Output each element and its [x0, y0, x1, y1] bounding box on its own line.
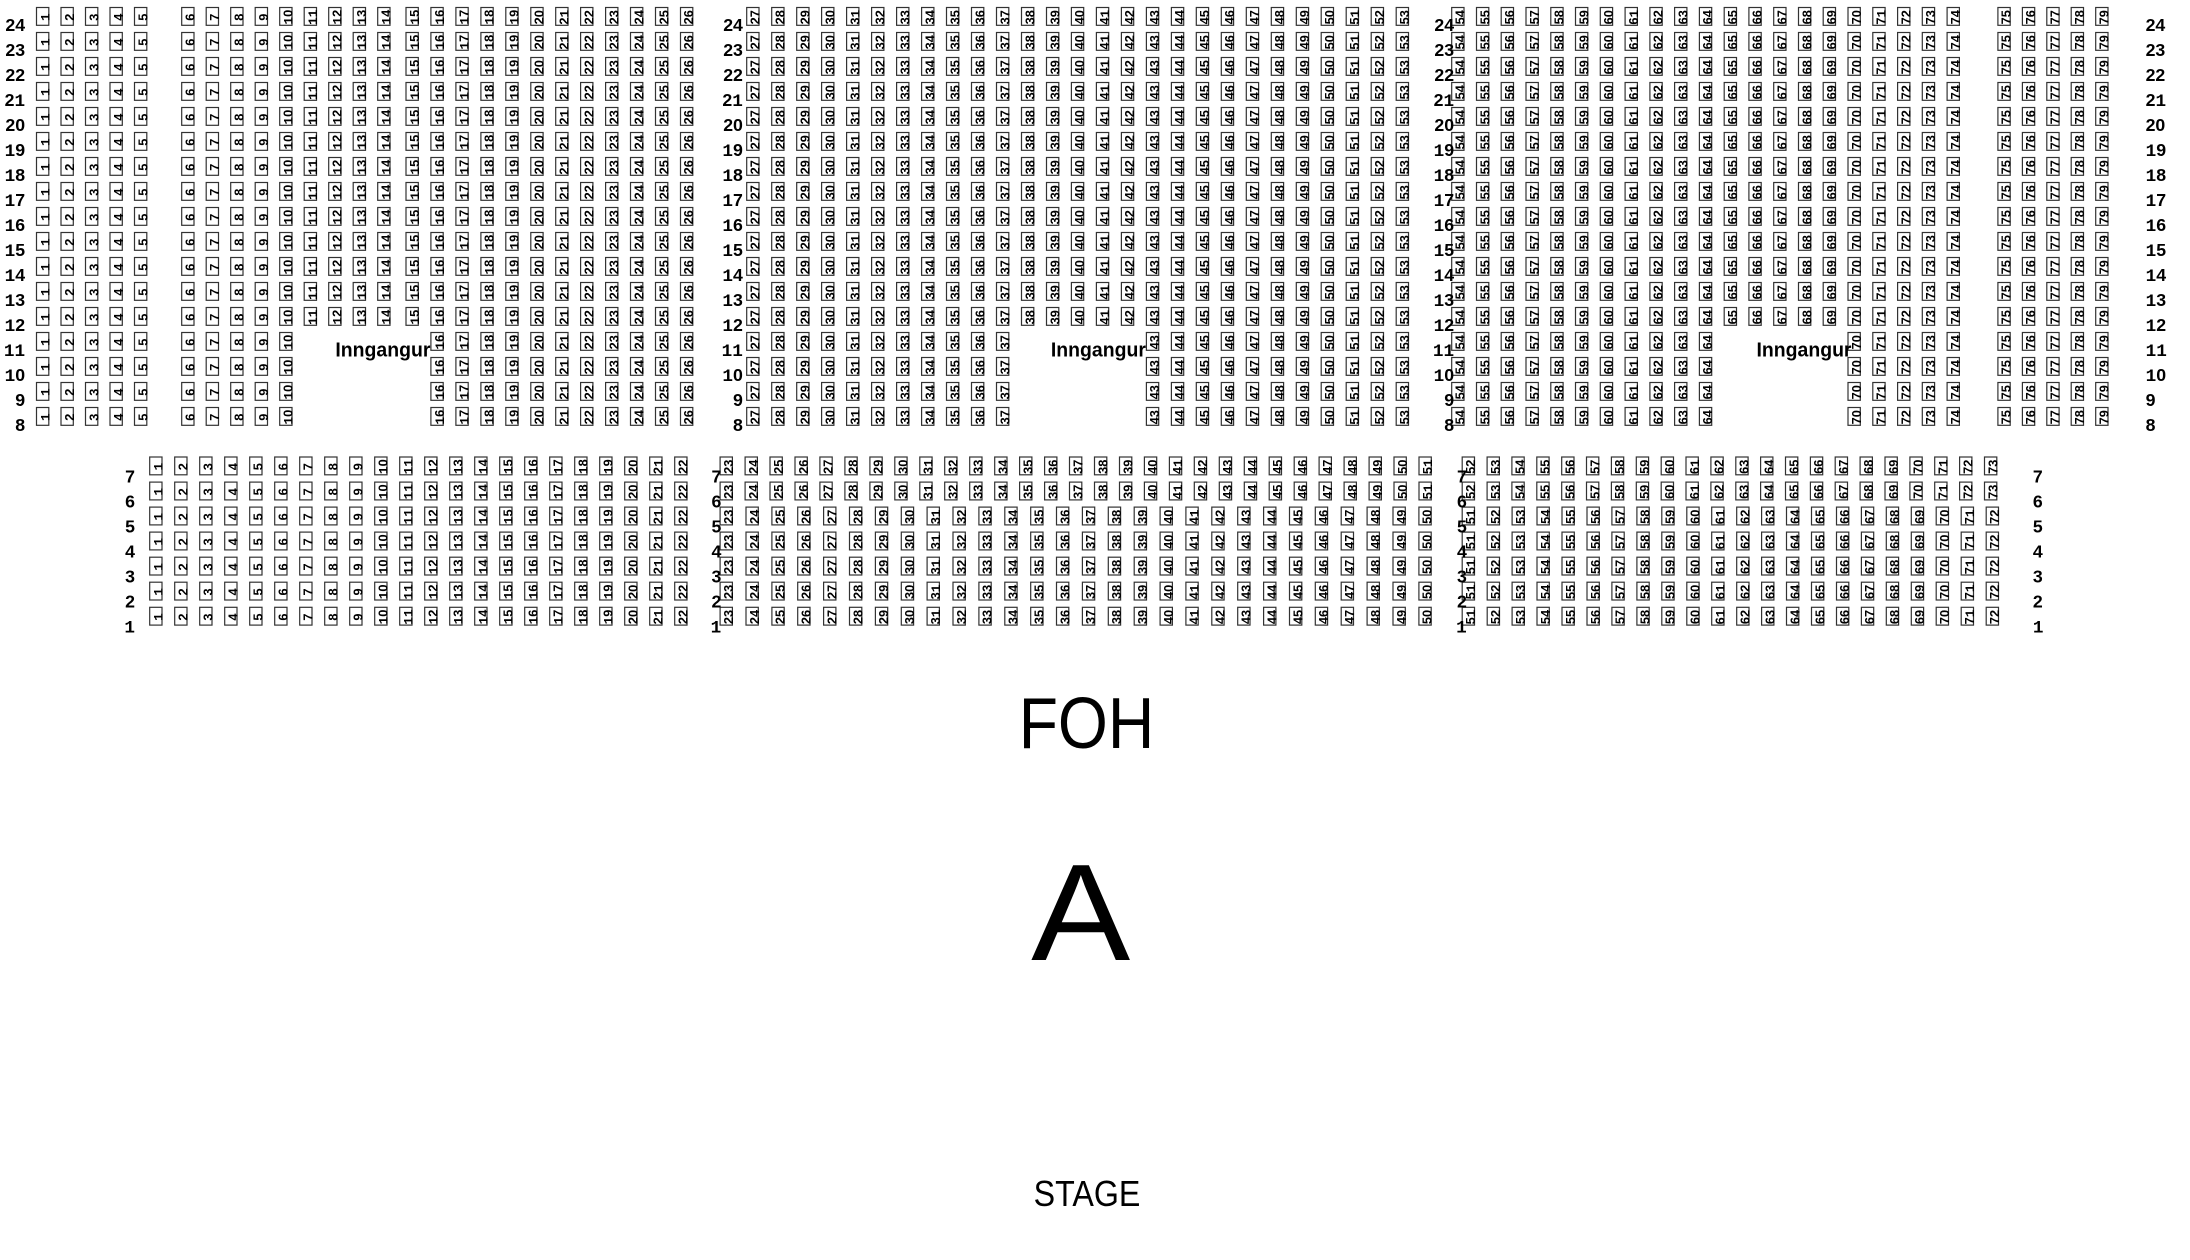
- svg-text:67: 67: [1775, 60, 1790, 74]
- svg-text:71: 71: [1962, 584, 1978, 599]
- svg-text:12: 12: [426, 610, 442, 625]
- svg-text:68: 68: [1799, 135, 1814, 149]
- svg-text:64: 64: [1700, 334, 1715, 349]
- svg-text:24: 24: [631, 134, 646, 149]
- svg-text:7: 7: [207, 89, 222, 96]
- svg-text:33: 33: [897, 35, 912, 49]
- svg-text:36: 36: [972, 285, 987, 299]
- svg-text:67: 67: [1862, 535, 1877, 549]
- svg-text:42: 42: [1122, 35, 1137, 49]
- svg-text:48: 48: [1272, 210, 1287, 224]
- svg-text:1: 1: [38, 188, 53, 196]
- svg-text:42: 42: [1195, 460, 1210, 474]
- svg-text:45: 45: [1197, 110, 1212, 124]
- svg-text:43: 43: [1147, 285, 1162, 299]
- svg-text:44: 44: [1172, 109, 1187, 124]
- svg-text:45: 45: [1197, 410, 1212, 424]
- svg-text:48: 48: [1272, 185, 1287, 199]
- svg-text:57: 57: [1527, 310, 1542, 324]
- svg-text:53: 53: [1397, 110, 1412, 124]
- svg-text:46: 46: [1222, 185, 1237, 199]
- svg-text:12: 12: [330, 260, 346, 275]
- svg-text:48: 48: [1272, 110, 1287, 124]
- svg-text:14: 14: [5, 265, 26, 287]
- svg-text:70: 70: [1849, 210, 1864, 224]
- svg-text:15: 15: [501, 509, 517, 524]
- svg-text:30: 30: [822, 385, 837, 399]
- svg-text:75: 75: [1999, 285, 2014, 299]
- svg-text:52: 52: [1372, 210, 1387, 224]
- svg-text:75: 75: [1999, 210, 2014, 224]
- svg-text:23: 23: [606, 410, 621, 424]
- svg-text:35: 35: [947, 360, 962, 374]
- svg-text:46: 46: [1316, 560, 1331, 574]
- svg-text:20: 20: [532, 185, 547, 199]
- svg-text:55: 55: [1563, 510, 1578, 524]
- svg-text:39: 39: [1047, 60, 1062, 74]
- svg-text:28: 28: [846, 485, 861, 499]
- svg-text:14: 14: [379, 84, 395, 100]
- svg-text:29: 29: [798, 285, 813, 299]
- svg-text:28: 28: [773, 385, 788, 399]
- svg-text:19: 19: [601, 534, 617, 549]
- svg-text:43: 43: [1147, 60, 1162, 74]
- svg-text:9: 9: [1444, 390, 1454, 410]
- svg-text:15: 15: [501, 534, 517, 549]
- svg-text:6: 6: [183, 189, 198, 196]
- svg-text:17: 17: [457, 260, 473, 275]
- svg-text:58: 58: [1552, 210, 1567, 224]
- svg-text:45: 45: [1197, 210, 1212, 224]
- svg-text:62: 62: [1651, 185, 1666, 199]
- svg-text:10: 10: [376, 610, 392, 625]
- svg-text:60: 60: [1601, 60, 1616, 74]
- svg-text:23: 23: [606, 310, 621, 324]
- svg-text:25: 25: [656, 410, 671, 424]
- svg-text:1: 1: [38, 363, 53, 371]
- svg-text:20: 20: [532, 360, 547, 374]
- svg-text:26: 26: [681, 160, 696, 174]
- svg-text:23: 23: [721, 485, 736, 499]
- svg-text:3: 3: [86, 289, 101, 296]
- svg-text:49: 49: [1297, 210, 1312, 224]
- svg-text:24: 24: [631, 184, 646, 199]
- svg-text:40: 40: [1145, 485, 1160, 499]
- svg-text:1: 1: [38, 113, 53, 121]
- svg-text:19: 19: [507, 310, 523, 325]
- svg-text:19: 19: [507, 360, 523, 375]
- svg-text:16: 16: [432, 235, 448, 250]
- svg-text:A: A: [1031, 836, 1130, 990]
- svg-text:11: 11: [402, 584, 417, 600]
- svg-text:63: 63: [1675, 110, 1690, 124]
- svg-text:39: 39: [1047, 160, 1062, 174]
- svg-text:48: 48: [1345, 460, 1360, 474]
- svg-text:56: 56: [1502, 110, 1517, 124]
- svg-text:11: 11: [306, 84, 321, 100]
- svg-text:60: 60: [1688, 535, 1703, 549]
- svg-text:25: 25: [656, 135, 671, 149]
- svg-text:2: 2: [62, 139, 77, 146]
- svg-text:71: 71: [1962, 609, 1978, 624]
- svg-text:55: 55: [1477, 235, 1492, 249]
- svg-text:16: 16: [2146, 215, 2167, 237]
- svg-text:22: 22: [581, 85, 596, 99]
- svg-text:52: 52: [1372, 285, 1387, 299]
- svg-text:49: 49: [1297, 310, 1312, 324]
- svg-text:73: 73: [1923, 135, 1938, 149]
- svg-text:62: 62: [1651, 60, 1666, 74]
- svg-text:47: 47: [1247, 10, 1262, 24]
- svg-text:27: 27: [748, 35, 763, 49]
- svg-text:23: 23: [2146, 40, 2166, 60]
- svg-text:71: 71: [1874, 359, 1890, 374]
- svg-text:57: 57: [1527, 110, 1542, 124]
- svg-text:33: 33: [897, 310, 912, 324]
- svg-text:52: 52: [1372, 35, 1387, 49]
- svg-text:9: 9: [2146, 390, 2156, 410]
- svg-text:FOH: FOH: [1019, 684, 1155, 764]
- svg-text:62: 62: [1651, 85, 1666, 99]
- svg-text:2: 2: [711, 592, 721, 612]
- svg-text:10: 10: [376, 484, 392, 499]
- svg-text:76: 76: [2023, 35, 2038, 49]
- svg-text:70: 70: [1849, 235, 1864, 249]
- svg-text:41: 41: [1097, 134, 1113, 149]
- svg-text:79: 79: [2097, 35, 2112, 49]
- svg-text:53: 53: [1513, 535, 1528, 549]
- svg-text:2: 2: [62, 89, 77, 96]
- svg-text:9: 9: [256, 364, 271, 371]
- svg-text:54: 54: [1453, 34, 1468, 49]
- svg-text:6: 6: [276, 488, 291, 495]
- svg-text:75: 75: [1999, 360, 2014, 374]
- svg-text:77: 77: [2048, 260, 2063, 274]
- svg-text:75: 75: [1999, 60, 2014, 74]
- svg-text:44: 44: [1172, 9, 1187, 24]
- svg-text:21: 21: [651, 584, 667, 599]
- svg-text:44: 44: [1264, 609, 1279, 624]
- svg-text:34: 34: [922, 9, 937, 24]
- svg-text:2: 2: [125, 592, 135, 612]
- svg-text:29: 29: [798, 110, 813, 124]
- svg-text:50: 50: [1395, 460, 1410, 474]
- svg-text:9: 9: [256, 314, 271, 321]
- svg-text:34: 34: [1006, 509, 1021, 524]
- svg-text:78: 78: [2072, 160, 2087, 174]
- svg-text:50: 50: [1420, 585, 1435, 599]
- svg-text:77: 77: [2048, 335, 2063, 349]
- svg-text:8: 8: [326, 513, 341, 520]
- svg-text:15: 15: [407, 35, 423, 50]
- svg-text:69: 69: [1824, 310, 1839, 324]
- svg-text:5: 5: [135, 189, 150, 196]
- svg-text:19: 19: [507, 185, 523, 200]
- svg-text:22: 22: [676, 610, 691, 624]
- svg-text:54: 54: [1453, 409, 1468, 424]
- svg-text:63: 63: [1675, 385, 1690, 399]
- svg-text:40: 40: [1161, 560, 1176, 574]
- svg-text:34: 34: [922, 259, 937, 274]
- svg-text:37: 37: [1083, 560, 1098, 574]
- svg-text:11: 11: [306, 309, 321, 325]
- svg-text:49: 49: [1297, 235, 1312, 249]
- svg-text:40: 40: [1161, 510, 1176, 524]
- svg-text:41: 41: [1097, 109, 1113, 124]
- svg-text:34: 34: [996, 459, 1011, 474]
- svg-text:55: 55: [1477, 35, 1492, 49]
- svg-text:29: 29: [798, 135, 813, 149]
- svg-text:78: 78: [2072, 185, 2087, 199]
- svg-text:31: 31: [847, 184, 863, 199]
- svg-text:31: 31: [847, 84, 863, 99]
- svg-text:32: 32: [872, 185, 887, 199]
- svg-text:75: 75: [1999, 235, 2014, 249]
- svg-text:8: 8: [232, 39, 247, 46]
- svg-text:8: 8: [232, 314, 247, 321]
- svg-text:78: 78: [2072, 135, 2087, 149]
- svg-text:62: 62: [1651, 160, 1666, 174]
- svg-text:56: 56: [1502, 235, 1517, 249]
- svg-text:18: 18: [576, 610, 592, 625]
- svg-text:38: 38: [1109, 585, 1124, 599]
- svg-text:8: 8: [232, 14, 247, 21]
- svg-text:17: 17: [457, 10, 473, 25]
- svg-text:45: 45: [1290, 610, 1305, 624]
- svg-text:24: 24: [747, 559, 762, 574]
- svg-text:30: 30: [822, 35, 837, 49]
- svg-text:15: 15: [407, 310, 423, 325]
- svg-text:38: 38: [1022, 185, 1037, 199]
- svg-text:59: 59: [1576, 60, 1591, 74]
- svg-text:26: 26: [796, 485, 811, 499]
- svg-text:67: 67: [1775, 285, 1790, 299]
- svg-text:28: 28: [773, 135, 788, 149]
- svg-text:24: 24: [723, 15, 743, 35]
- svg-text:20: 20: [532, 260, 547, 274]
- svg-text:1: 1: [152, 588, 167, 596]
- svg-text:38: 38: [1109, 610, 1124, 624]
- svg-text:18: 18: [482, 335, 498, 350]
- svg-text:3: 3: [125, 567, 135, 587]
- svg-text:70: 70: [1849, 410, 1864, 424]
- svg-text:6: 6: [276, 563, 291, 570]
- svg-text:14: 14: [379, 234, 395, 250]
- svg-text:36: 36: [972, 85, 987, 99]
- svg-text:27: 27: [824, 510, 839, 524]
- svg-text:35: 35: [947, 335, 962, 349]
- svg-text:46: 46: [1222, 235, 1237, 249]
- svg-text:44: 44: [1172, 84, 1187, 99]
- svg-text:61: 61: [1626, 409, 1642, 424]
- svg-text:14: 14: [379, 184, 395, 200]
- svg-text:28: 28: [773, 35, 788, 49]
- svg-text:31: 31: [847, 359, 863, 374]
- svg-text:18: 18: [482, 10, 498, 25]
- svg-text:22: 22: [581, 10, 596, 24]
- svg-text:78: 78: [2072, 335, 2087, 349]
- svg-text:75: 75: [1999, 185, 2014, 199]
- svg-text:31: 31: [847, 34, 863, 49]
- svg-text:60: 60: [1601, 85, 1616, 99]
- svg-text:66: 66: [1750, 285, 1765, 299]
- svg-text:14: 14: [476, 534, 492, 550]
- svg-text:64: 64: [1700, 84, 1715, 99]
- svg-text:5: 5: [2033, 516, 2043, 536]
- svg-text:57: 57: [1527, 10, 1542, 24]
- svg-text:3: 3: [86, 89, 101, 96]
- svg-text:2: 2: [1457, 592, 1467, 612]
- svg-text:71: 71: [1874, 259, 1890, 274]
- svg-text:44: 44: [1264, 509, 1279, 524]
- svg-text:36: 36: [1057, 585, 1072, 599]
- svg-text:30: 30: [822, 285, 837, 299]
- svg-text:53: 53: [1397, 135, 1412, 149]
- svg-text:22: 22: [581, 335, 596, 349]
- svg-text:51: 51: [1347, 359, 1363, 374]
- svg-text:74: 74: [1948, 84, 1963, 99]
- svg-text:39: 39: [1135, 535, 1150, 549]
- svg-text:31: 31: [921, 484, 937, 499]
- svg-text:2: 2: [176, 463, 191, 470]
- svg-text:34: 34: [922, 134, 937, 149]
- svg-text:13: 13: [354, 235, 370, 250]
- svg-text:28: 28: [850, 585, 865, 599]
- svg-text:70: 70: [1849, 110, 1864, 124]
- svg-text:11: 11: [306, 284, 321, 300]
- svg-text:17: 17: [1434, 190, 1455, 212]
- svg-text:61: 61: [1626, 184, 1642, 199]
- svg-text:59: 59: [1576, 235, 1591, 249]
- svg-text:6: 6: [183, 164, 198, 171]
- svg-text:74: 74: [1948, 159, 1963, 174]
- svg-text:2: 2: [62, 164, 77, 171]
- svg-text:7: 7: [1457, 466, 1467, 486]
- svg-text:17: 17: [457, 285, 473, 300]
- svg-text:56: 56: [1502, 310, 1517, 324]
- svg-text:19: 19: [601, 610, 617, 625]
- svg-text:6: 6: [2033, 491, 2043, 511]
- svg-text:76: 76: [2023, 135, 2038, 149]
- svg-text:71: 71: [1874, 284, 1890, 299]
- svg-text:36: 36: [972, 10, 987, 24]
- svg-text:66: 66: [1837, 560, 1852, 574]
- svg-text:25: 25: [656, 85, 671, 99]
- svg-text:6: 6: [183, 239, 198, 246]
- svg-text:44: 44: [1172, 309, 1187, 324]
- svg-text:Inngangur: Inngangur: [1051, 340, 1146, 362]
- svg-text:32: 32: [872, 335, 887, 349]
- svg-text:70: 70: [1937, 560, 1952, 574]
- svg-text:49: 49: [1370, 460, 1385, 474]
- svg-text:31: 31: [928, 534, 944, 549]
- svg-text:17: 17: [551, 509, 567, 524]
- svg-text:12: 12: [426, 559, 442, 574]
- svg-text:34: 34: [1006, 534, 1021, 549]
- svg-text:61: 61: [1713, 509, 1729, 524]
- svg-text:22: 22: [581, 185, 596, 199]
- svg-text:55: 55: [1477, 410, 1492, 424]
- svg-text:68: 68: [1799, 110, 1814, 124]
- svg-text:72: 72: [1960, 460, 1975, 474]
- svg-text:3: 3: [86, 39, 101, 46]
- svg-text:7: 7: [711, 466, 721, 486]
- svg-text:31: 31: [928, 584, 944, 599]
- svg-text:68: 68: [1799, 185, 1814, 199]
- svg-text:47: 47: [1247, 410, 1262, 424]
- svg-text:54: 54: [1453, 234, 1468, 249]
- svg-text:10: 10: [281, 360, 297, 375]
- svg-text:58: 58: [1552, 35, 1567, 49]
- svg-text:21: 21: [557, 134, 573, 149]
- svg-text:14: 14: [379, 209, 395, 225]
- svg-text:78: 78: [2072, 210, 2087, 224]
- svg-text:23: 23: [721, 535, 736, 549]
- svg-text:44: 44: [1172, 184, 1187, 199]
- svg-text:61: 61: [1626, 234, 1642, 249]
- svg-text:32: 32: [946, 460, 961, 474]
- svg-text:47: 47: [1247, 385, 1262, 399]
- svg-text:62: 62: [1651, 385, 1666, 399]
- svg-text:19: 19: [507, 210, 523, 225]
- svg-text:3: 3: [2033, 567, 2043, 587]
- svg-text:5: 5: [1457, 516, 1467, 536]
- svg-text:37: 37: [997, 210, 1012, 224]
- svg-text:45: 45: [1197, 385, 1212, 399]
- svg-text:25: 25: [773, 585, 788, 599]
- svg-text:60: 60: [1601, 10, 1616, 24]
- svg-text:65: 65: [1812, 560, 1827, 574]
- svg-text:14: 14: [1434, 265, 1455, 287]
- svg-text:11: 11: [402, 459, 417, 475]
- svg-text:38: 38: [1022, 210, 1037, 224]
- svg-text:63: 63: [1762, 585, 1777, 599]
- svg-text:34: 34: [922, 234, 937, 249]
- svg-text:17: 17: [551, 610, 567, 625]
- svg-text:31: 31: [847, 9, 863, 24]
- svg-text:36: 36: [1045, 460, 1060, 474]
- svg-text:40: 40: [1161, 535, 1176, 549]
- svg-text:43: 43: [1147, 160, 1162, 174]
- svg-text:65: 65: [1786, 460, 1801, 474]
- svg-text:32: 32: [872, 260, 887, 274]
- svg-text:59: 59: [1576, 285, 1591, 299]
- svg-text:38: 38: [1095, 485, 1110, 499]
- svg-text:2: 2: [62, 339, 77, 346]
- svg-text:7: 7: [207, 114, 222, 121]
- svg-text:31: 31: [847, 234, 863, 249]
- svg-text:44: 44: [1172, 134, 1187, 149]
- svg-text:13: 13: [2146, 290, 2167, 312]
- svg-text:3: 3: [86, 14, 101, 21]
- svg-text:29: 29: [798, 60, 813, 74]
- svg-text:59: 59: [1576, 85, 1591, 99]
- svg-text:36: 36: [1057, 560, 1072, 574]
- svg-text:19: 19: [507, 235, 523, 250]
- svg-text:35: 35: [1032, 535, 1047, 549]
- svg-text:77: 77: [2048, 110, 2063, 124]
- svg-text:68: 68: [1799, 310, 1814, 324]
- svg-text:24: 24: [1434, 15, 1454, 35]
- svg-text:32: 32: [872, 35, 887, 49]
- svg-text:43: 43: [1147, 385, 1162, 399]
- svg-text:5: 5: [251, 488, 266, 495]
- svg-text:25: 25: [656, 335, 671, 349]
- svg-text:2: 2: [62, 214, 77, 221]
- svg-text:47: 47: [1247, 310, 1262, 324]
- svg-text:13: 13: [354, 10, 370, 25]
- svg-text:54: 54: [1453, 109, 1468, 124]
